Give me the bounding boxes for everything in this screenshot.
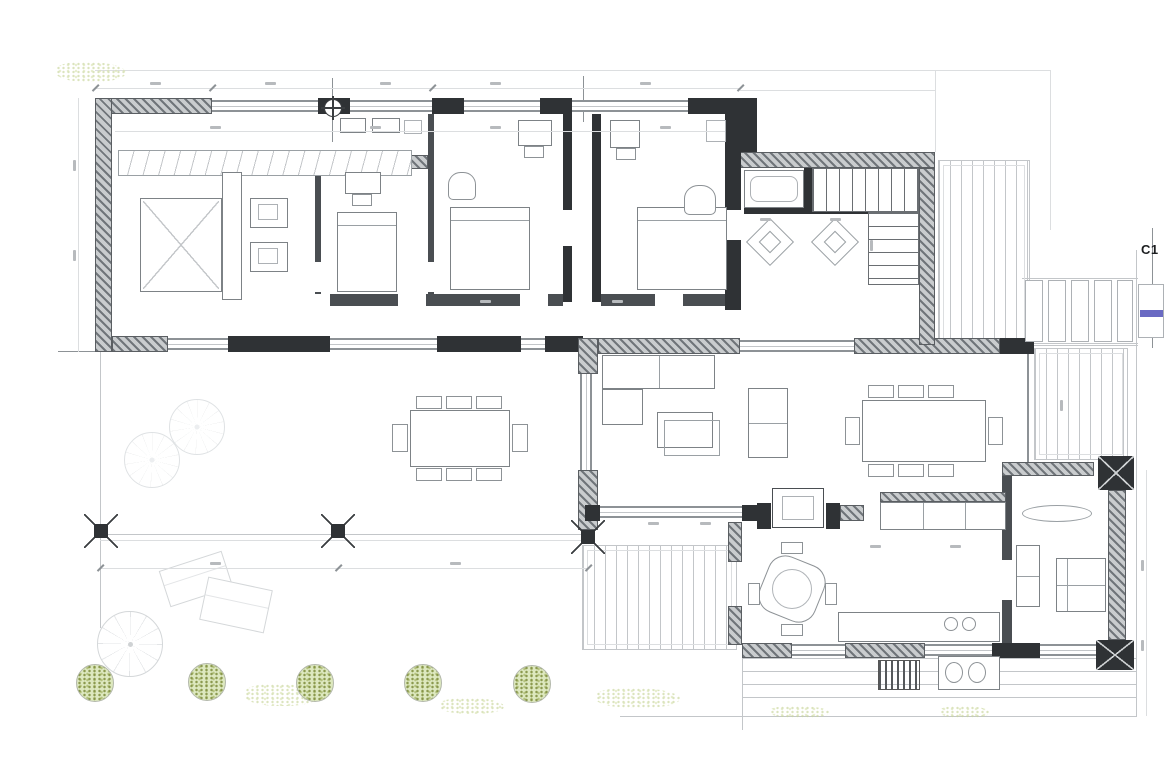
dim-number	[210, 126, 221, 129]
dim-number	[612, 300, 623, 303]
right-step-2	[1048, 280, 1066, 342]
chair-do-6	[476, 468, 502, 481]
stairs-lower-run	[868, 212, 919, 285]
dim-number	[450, 562, 461, 565]
dim-number	[870, 240, 873, 251]
dim-line-terrace	[100, 568, 588, 569]
dim-number	[150, 82, 161, 85]
fireplace-jamb-right	[826, 503, 840, 529]
right-steps-bottom-edge	[1022, 343, 1138, 344]
deck-right-top-edge	[1034, 345, 1138, 346]
dim-number	[1141, 640, 1144, 651]
chair-do-2	[446, 396, 472, 409]
desk-bed3	[610, 120, 640, 148]
deck-east-of-stairs	[938, 160, 1030, 345]
wall-kitchen-west-a	[728, 522, 742, 562]
chair-di-3	[928, 385, 954, 398]
dim-number	[700, 522, 711, 525]
tree-canopy-2	[124, 432, 180, 488]
window-top-3	[464, 100, 540, 112]
dim-number	[660, 126, 671, 129]
dim-number	[265, 82, 276, 85]
grill-appliance	[878, 660, 920, 690]
chair-do-8	[512, 424, 528, 452]
wall-entry-north	[740, 152, 935, 168]
right-step-1	[1025, 280, 1043, 342]
corridor-wall-5	[683, 294, 725, 306]
wall-rightroom-east	[1108, 490, 1126, 640]
dim-number	[370, 126, 381, 129]
corridor-wall-3	[548, 294, 563, 306]
ground-scatter-4	[596, 688, 680, 708]
dim-number	[490, 126, 501, 129]
dim-number	[870, 545, 881, 548]
bush-5	[513, 665, 551, 703]
boundary-bottom	[620, 716, 1137, 717]
chair-di-5	[898, 464, 924, 477]
bush-2	[188, 663, 226, 701]
dim-line-left	[78, 98, 79, 352]
sill-mid-1	[228, 336, 330, 352]
bush-3	[296, 664, 334, 702]
dining-table-indoor	[862, 400, 986, 462]
sofa-side	[748, 388, 788, 458]
window-top-2	[350, 100, 432, 112]
desk-bed2	[518, 120, 552, 146]
dim-number	[73, 250, 76, 261]
site-line-top	[95, 70, 1050, 71]
dim-number	[1141, 560, 1144, 571]
right-step-4	[1094, 280, 1112, 342]
breakfast-table-inner	[772, 569, 812, 609]
column-terrace-2	[321, 514, 355, 548]
chair-rt-right	[825, 583, 837, 605]
dim-number	[380, 82, 391, 85]
floor-plan-canvas: C1	[0, 0, 1170, 772]
boundary-right	[1136, 250, 1137, 716]
armchair-bed2	[448, 172, 476, 200]
window-living-north	[740, 340, 854, 352]
hall-wall-east	[592, 114, 601, 302]
parasol	[97, 611, 163, 677]
fireplace-inner	[782, 496, 814, 520]
corridor-wall-4	[601, 294, 655, 306]
coffee-table-2	[664, 420, 720, 456]
island-counter-top	[880, 492, 1006, 502]
site-line-v2	[1050, 70, 1051, 230]
window-kitchen-south-1	[792, 644, 845, 656]
bed-2	[450, 207, 530, 290]
dim-number	[73, 160, 76, 171]
section-marker-label: C1	[1141, 242, 1159, 257]
door-bed2-west	[425, 262, 437, 292]
corridor-wall-1	[330, 294, 398, 306]
column-terrace-3	[571, 520, 605, 554]
stairs-upper-run	[812, 168, 919, 212]
sliding-door-living-south	[600, 506, 742, 518]
wall-entry-east	[919, 168, 935, 345]
cabinet-rightroom	[1016, 545, 1040, 607]
dim-number	[640, 82, 651, 85]
terrace-edge-left	[100, 352, 101, 628]
island-cabinets	[880, 502, 1006, 530]
jamb-living-sw	[585, 505, 600, 521]
chair-do-7	[392, 424, 408, 452]
fireplace-jamb-left	[757, 503, 771, 529]
chair-do-5	[446, 468, 472, 481]
right-step-3	[1071, 280, 1089, 342]
glass-living-east	[1027, 354, 1029, 462]
desk-smallroom	[345, 172, 381, 194]
sofa-arm	[602, 389, 643, 425]
chair-bed3	[616, 148, 636, 160]
bbq-bowl-2	[968, 662, 986, 683]
ground-scatter-1	[56, 62, 126, 82]
dining-table-outdoor	[410, 410, 510, 467]
dim-line-rooms	[115, 131, 725, 132]
window-mid-2	[330, 338, 437, 350]
chair-rt-bottom	[781, 624, 803, 636]
axis-marker	[324, 99, 342, 117]
door-smallroom-west	[312, 262, 324, 292]
right-step-5	[1117, 280, 1133, 342]
wall-entry-connector	[740, 98, 757, 152]
bush-4	[404, 664, 442, 702]
sun-lounger-2	[199, 577, 273, 634]
wall-living-north-1	[598, 338, 740, 354]
ground-scatter-3	[440, 698, 504, 714]
site-line-v1	[935, 70, 936, 152]
daybed	[1056, 558, 1106, 612]
chair-di-4	[868, 464, 894, 477]
bathtub-inner	[750, 176, 798, 202]
hall-wall-west	[563, 114, 572, 302]
chair-di-6	[928, 464, 954, 477]
bbq-bowl-1	[945, 662, 963, 683]
tree-canopy-1	[169, 399, 225, 455]
window-kitchen-south-3	[1040, 644, 1098, 656]
bath-partition	[744, 208, 812, 214]
window-top-4	[572, 100, 688, 112]
dim-line-right	[1146, 470, 1147, 716]
nightstand-2-chair	[258, 248, 278, 264]
sofa-back	[602, 355, 715, 389]
dim-number	[950, 545, 961, 548]
wall-left	[95, 98, 112, 352]
bed-master	[140, 198, 222, 292]
kitchen-counter-south	[838, 612, 1000, 642]
chair-rt-top	[781, 542, 803, 554]
right-steps-top-edge	[1022, 278, 1138, 279]
wall-kitchen-south-1	[742, 643, 792, 658]
window-kitchen-south-2	[925, 644, 992, 656]
wall-living-south-east	[840, 505, 864, 521]
bed-master-headboard	[222, 172, 242, 300]
hall-door-west	[560, 210, 575, 246]
wall-top-west	[95, 98, 212, 114]
column-rightroom-ne	[1098, 456, 1134, 490]
chair-di-7	[845, 417, 860, 445]
chair-smallroom	[352, 194, 372, 206]
wall-rightroom-north	[1002, 462, 1094, 476]
deck-south-mid	[582, 545, 737, 650]
cooktop-burner-2	[962, 617, 976, 631]
bed-3	[637, 207, 727, 290]
site-line-entry	[740, 90, 935, 91]
dim-number	[648, 522, 659, 525]
armchair-bed3	[684, 185, 716, 215]
dim-number	[760, 218, 771, 221]
bed-smallroom	[337, 212, 397, 292]
axis-line-2	[583, 76, 584, 122]
column-terrace-1	[84, 514, 118, 548]
window-mid-3	[521, 338, 545, 350]
pier-top-4	[688, 98, 742, 114]
chair-do-4	[416, 468, 442, 481]
pier-top-2	[432, 98, 464, 114]
wall-bed3-east-b	[725, 240, 741, 310]
dim-number	[480, 300, 491, 303]
window-top-1	[212, 100, 318, 112]
chair-di-1	[868, 385, 894, 398]
ground-scatter-5	[770, 706, 830, 718]
cooktop-burner-1	[944, 617, 958, 631]
chair-di-2	[898, 385, 924, 398]
window-living-west	[580, 374, 592, 470]
section-marker-blue-dash	[1140, 310, 1163, 317]
chair-bed2	[524, 146, 544, 158]
dim-number	[210, 562, 221, 565]
chair-di-8	[988, 417, 1003, 445]
dim-line-top	[95, 88, 740, 89]
wall-mid-west	[112, 336, 168, 352]
grid-stub-left	[58, 351, 100, 352]
chair-do-1	[416, 396, 442, 409]
chair-rt-left	[748, 583, 760, 605]
bush-1	[76, 664, 114, 702]
jamb-living-s2	[742, 505, 758, 521]
corridor-wall-2	[426, 294, 520, 306]
sill-mid-2	[437, 336, 521, 352]
pier-top-3	[540, 98, 572, 114]
chair-do-3	[476, 396, 502, 409]
partition-rightroom-west-b	[1002, 600, 1012, 643]
wall-living-west-1	[578, 338, 598, 374]
nightstand-1-chair	[258, 204, 278, 220]
column-rightroom-se	[1096, 640, 1134, 670]
window-mid-1	[168, 338, 228, 350]
deck-right-mid	[1034, 348, 1128, 460]
wall-bed3-east-a	[725, 114, 741, 210]
wall-kitchen-west-b	[728, 606, 742, 645]
wall-kitchen-south-2	[845, 643, 925, 658]
dim-number	[1060, 400, 1063, 411]
ground-scatter-6	[940, 706, 990, 718]
dim-number	[830, 218, 841, 221]
trough-basin	[1022, 505, 1092, 522]
dim-number	[490, 82, 501, 85]
